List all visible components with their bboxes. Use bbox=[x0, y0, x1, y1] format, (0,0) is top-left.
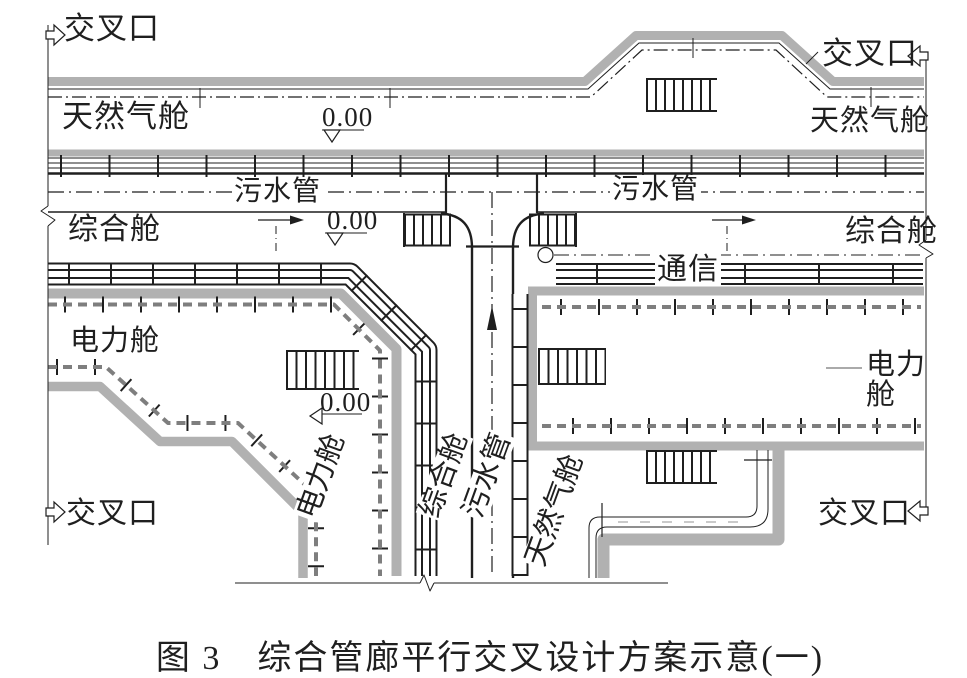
left-power-cable-2 bbox=[48, 367, 316, 576]
figure-caption: 图 3 综合管廊平行交叉设计方案示意(一) bbox=[150, 630, 830, 678]
break-mark-icon bbox=[420, 575, 434, 591]
comm-node bbox=[538, 248, 922, 263]
sewage-label-right: 污水管 bbox=[610, 175, 701, 204]
intersection-label-bottom-right: 交叉口 bbox=[818, 498, 911, 530]
elevation-value-3: 0.00 bbox=[320, 387, 371, 418]
tee-junction-ladder bbox=[404, 213, 576, 247]
power-label-left: 电力舱 bbox=[70, 326, 160, 356]
utility-zone-lines bbox=[48, 174, 924, 213]
entry-arrow-bottom-left-icon bbox=[46, 502, 65, 522]
intersection-label-top-right: 交叉口 bbox=[822, 38, 918, 71]
elevation-value-1: 0.00 bbox=[322, 102, 373, 133]
flow-arrow-left bbox=[258, 216, 304, 253]
intersection-label-top-left: 交叉口 bbox=[64, 13, 160, 46]
elevation-value-2: 0.00 bbox=[327, 205, 378, 236]
left-power-stair-wall-gray bbox=[48, 387, 303, 579]
utility-label-left: 综合舱 bbox=[68, 214, 161, 246]
entry-arrow-top-left-icon bbox=[46, 25, 65, 45]
entry-arrow-bottom-right-icon bbox=[908, 501, 928, 521]
gas-label-right: 天然气舱 bbox=[810, 106, 930, 136]
intersection-label-bottom-left: 交叉口 bbox=[66, 498, 159, 530]
utility-tunnel-plan-diagram: 交叉口 交叉口 交叉口 交叉口 天然气舱 天然气舱 污水管 污水管 综合舱 综合… bbox=[0, 0, 967, 678]
comm-label: 通信 bbox=[655, 254, 721, 286]
flow-arrow-up-icon bbox=[487, 306, 497, 330]
gas-label-left: 天然气舱 bbox=[62, 101, 190, 134]
sewage-label-left: 污水管 bbox=[232, 177, 323, 206]
utility-label-right: 综合舱 bbox=[845, 216, 938, 248]
break-mark-icon bbox=[41, 206, 55, 226]
node-circle-icon bbox=[538, 248, 553, 263]
sewage-hatch-band bbox=[48, 158, 924, 174]
flow-arrow-right bbox=[712, 216, 756, 253]
power-label-right: 电力舱 bbox=[866, 350, 930, 411]
gas-top-wall-gray bbox=[48, 36, 924, 82]
